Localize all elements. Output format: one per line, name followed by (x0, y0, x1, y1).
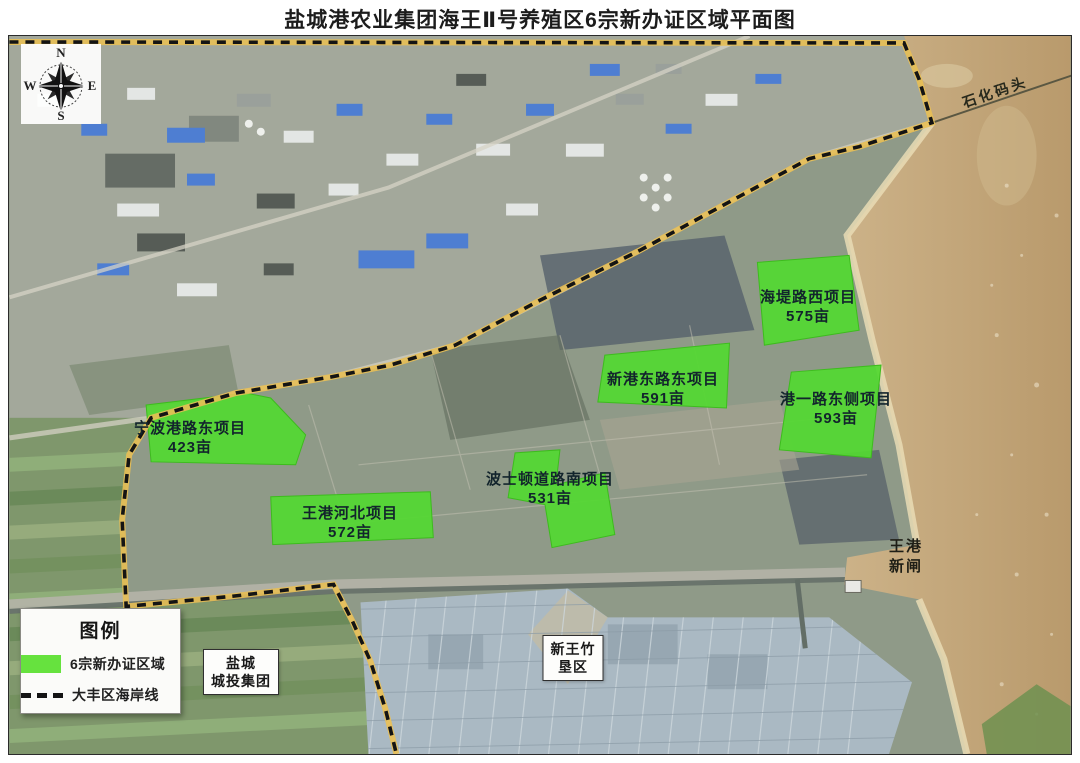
parcel-area: 591亩 (607, 389, 719, 408)
compass-west-label: W (24, 78, 37, 94)
compass-south-label: S (57, 108, 64, 124)
parcel-label-xingang-east: 新港东路东项目 591亩 (607, 370, 719, 408)
legend-swatch-dashed (21, 693, 63, 698)
parcel-label-gangyilu-east: 港一路东侧项目 593亩 (780, 390, 892, 428)
parcel-name: 王港河北项目 (302, 504, 398, 523)
parcel-area: 575亩 (760, 307, 856, 326)
parcel-label-wanggang-north: 王港河北项目 572亩 (302, 504, 398, 542)
sluice-structure (845, 580, 861, 592)
legend-item-green: 6宗新办证区域 (21, 654, 180, 674)
legend-item-coastline: 大丰区海岸线 (21, 685, 180, 705)
legend: 图例 6宗新办证区域 大丰区海岸线 (20, 608, 181, 714)
parcel-name: 波士顿道路南项目 (486, 470, 614, 489)
compass-north-label: N (56, 45, 65, 61)
parcel-area: 531亩 (486, 489, 614, 508)
page-title: 盐城港农业集团海王Ⅱ号养殖区6宗新办证区域平面图 (0, 4, 1080, 34)
parcel-area: 572亩 (302, 523, 398, 542)
parcel-area: 423亩 (134, 438, 246, 457)
legend-item-label: 大丰区海岸线 (72, 685, 159, 705)
parcel-name: 港一路东侧项目 (780, 390, 892, 409)
sluice-label: 王港 新闸 (889, 537, 923, 577)
xinwangzhu-label: 新王竹 垦区 (543, 635, 604, 681)
parcel-label-haidilu-west: 海堤路西项目 575亩 (760, 288, 856, 326)
compass-rose: N S W E (21, 44, 101, 124)
parcel-name: 宁波港路东项目 (134, 419, 246, 438)
legend-item-label: 6宗新办证区域 (70, 654, 165, 674)
yancheng-chengtou-label: 盐城 城投集团 (203, 649, 279, 695)
parcel-label-ningbogang-east: 宁波港路东项目 423亩 (134, 419, 246, 457)
legend-swatch-green (21, 655, 61, 673)
parcel-label-boshidun-south: 波士顿道路南项目 531亩 (486, 470, 614, 508)
parcel-name: 海堤路西项目 (760, 288, 856, 307)
compass-east-label: E (88, 78, 97, 94)
parcel-area: 593亩 (780, 409, 892, 428)
legend-title: 图例 (21, 616, 180, 643)
plan-sheet: 盐城港农业集团海王Ⅱ号养殖区6宗新办证区域平面图 (0, 0, 1080, 763)
parcel-name: 新港东路东项目 (607, 370, 719, 389)
